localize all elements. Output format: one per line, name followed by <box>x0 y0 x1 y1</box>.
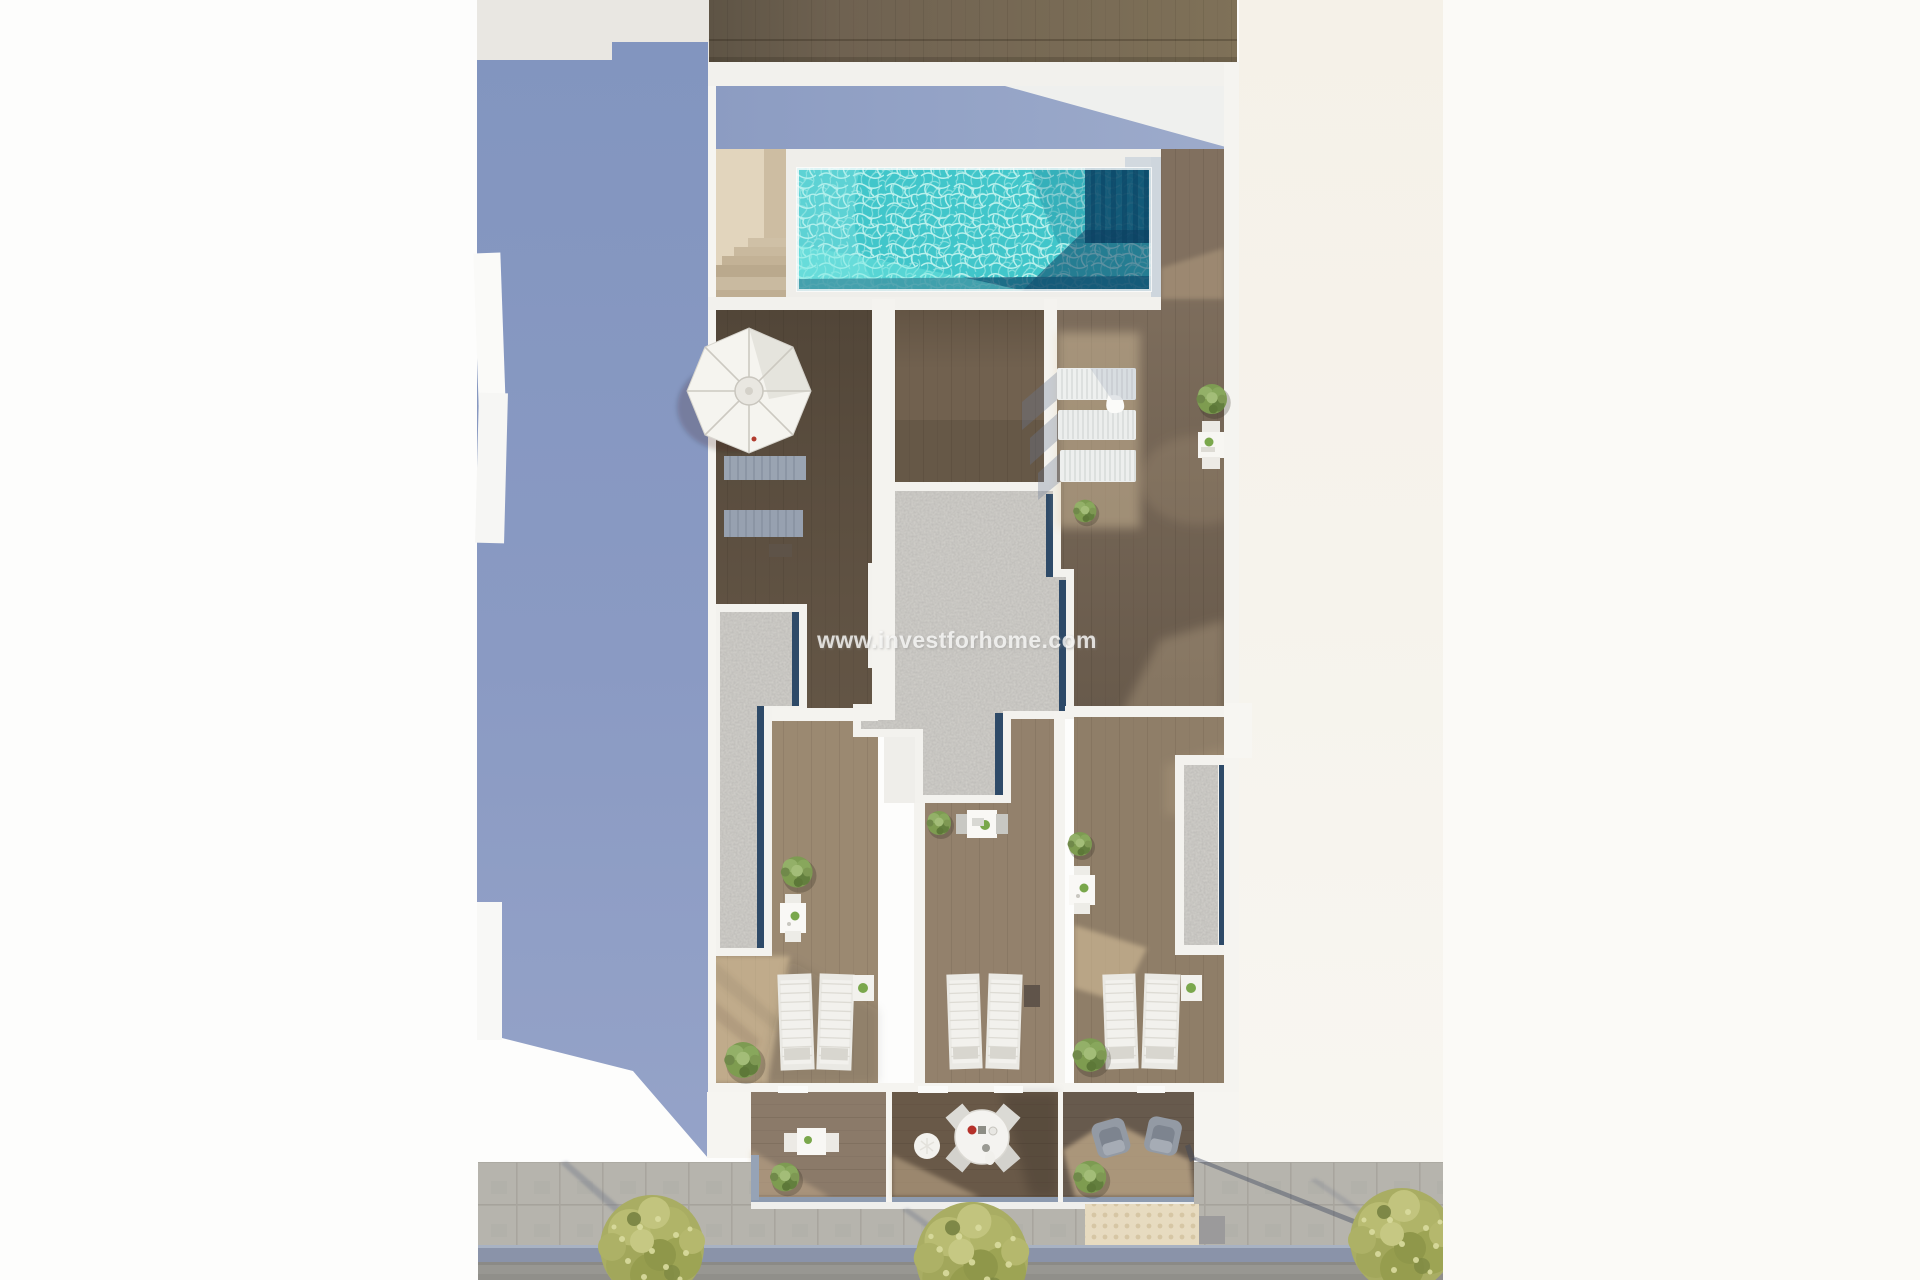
svg-text:www.investforhome.com: www.investforhome.com <box>816 627 1097 653</box>
